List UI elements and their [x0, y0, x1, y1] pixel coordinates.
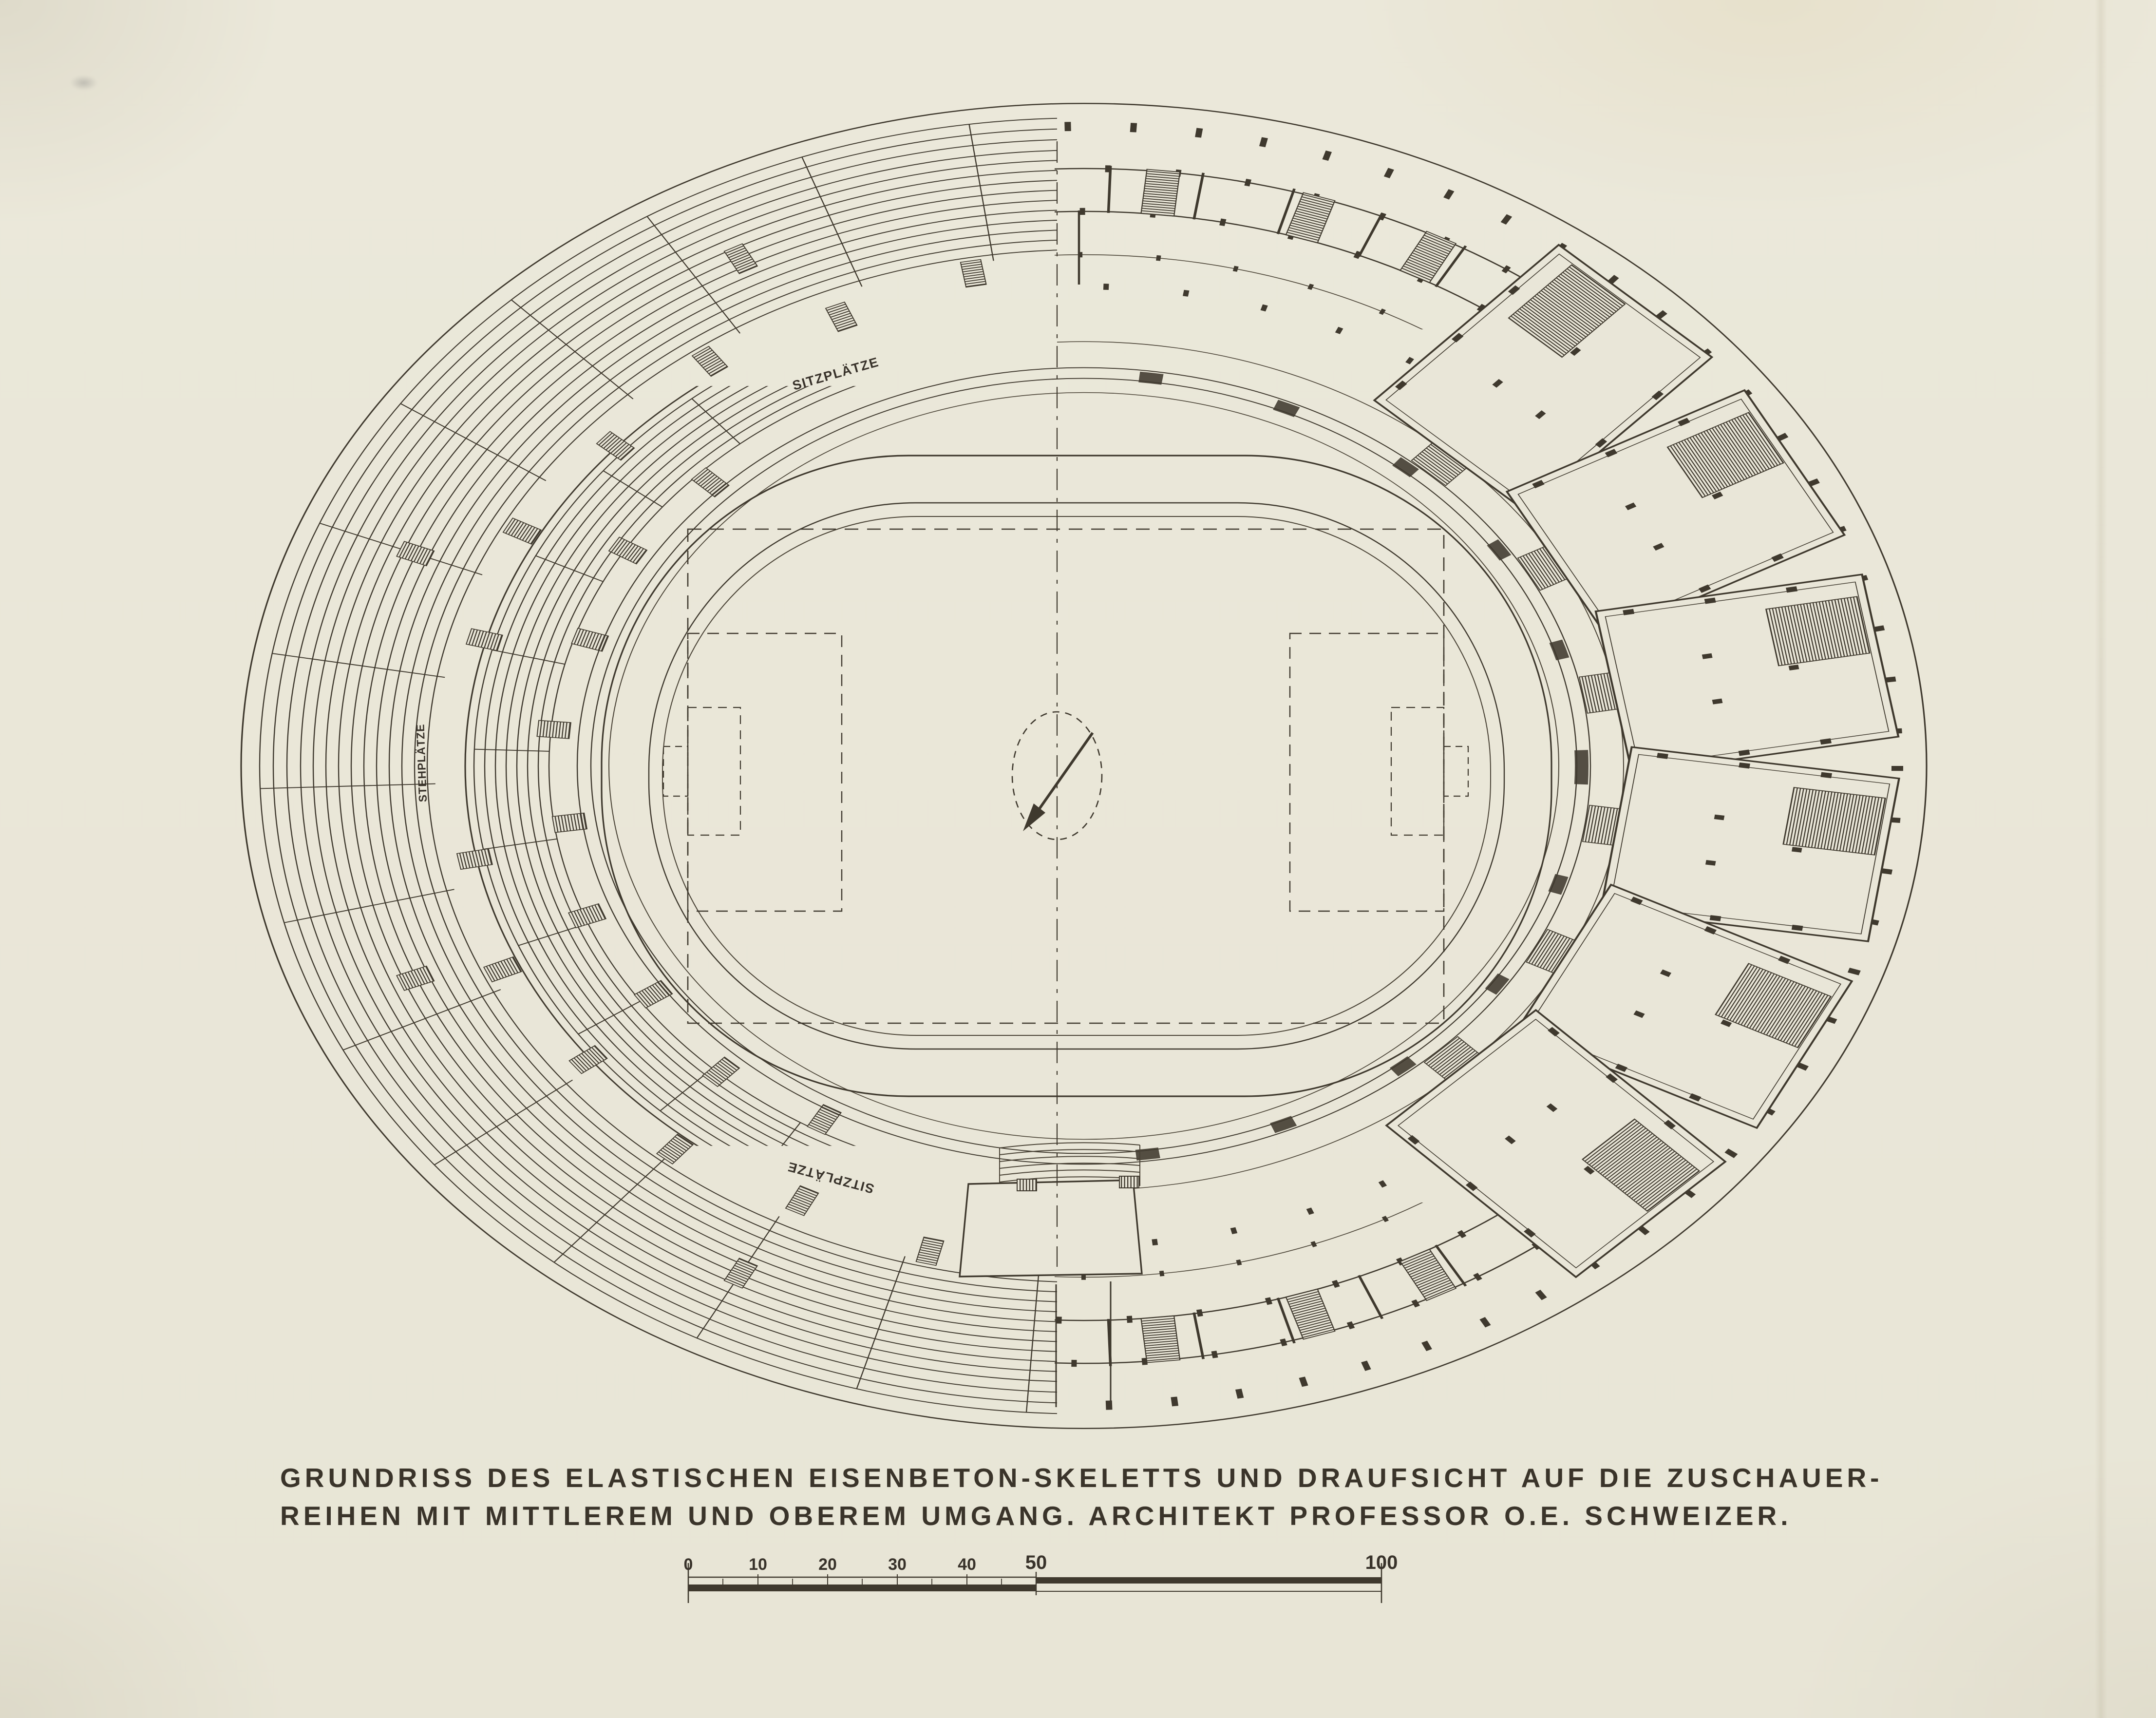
- running-track: [602, 456, 1551, 1096]
- caption-line-1: GRUNDRISS DES ELASTISCHEN EISENBETON-SKE…: [280, 1463, 1883, 1493]
- direction-arrow: [1037, 733, 1093, 813]
- skeleton-blocks: [1353, 245, 1899, 1278]
- scale-bar: 0 10 20 30 40 50 100: [684, 1552, 1398, 1603]
- caption-line-2: REIHEN MIT MITTLEREM UND OBEREM UMGANG. …: [280, 1501, 1792, 1531]
- arrow-head: [1023, 803, 1045, 831]
- soccer-field: [663, 141, 1468, 1267]
- label-stehplaetze-left: STEHPLÄTZE: [414, 724, 429, 802]
- honor-tribune: [960, 1143, 1142, 1277]
- scanned-page: SITZPLÄTZE STEHPLÄTZE SITZPLÄTZE GRUNDRI…: [0, 0, 2156, 1718]
- scale-tick-20: 20: [818, 1555, 837, 1574]
- label-sitzplaetze-top: SITZPLÄTZE: [791, 354, 881, 393]
- gallery-stairs: [1141, 169, 1456, 1362]
- paper-fold: [2095, 0, 2107, 1718]
- stadium-plan-drawing: SITZPLÄTZE STEHPLÄTZE SITZPLÄTZE GRUNDRI…: [0, 0, 2156, 1718]
- scale-tick-100: 100: [1365, 1552, 1398, 1573]
- scale-tick-0: 0: [684, 1555, 693, 1574]
- scale-tick-40: 40: [958, 1555, 976, 1574]
- scale-tick-50: 50: [1025, 1552, 1047, 1573]
- scale-tick-30: 30: [888, 1555, 907, 1574]
- caption: GRUNDRISS DES ELASTISCHEN EISENBETON-SKE…: [280, 1463, 1883, 1531]
- middle-walkway: [577, 368, 1590, 1164]
- scale-tick-10: 10: [749, 1555, 767, 1574]
